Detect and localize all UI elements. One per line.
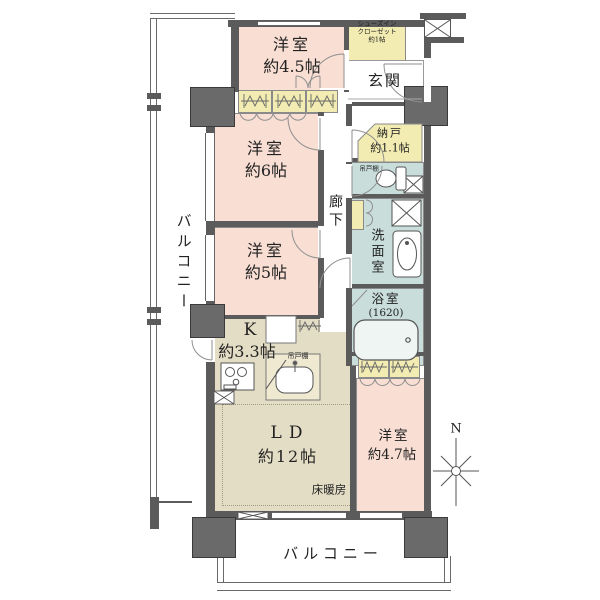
wall-segment (348, 352, 424, 356)
wall-segment (150, 497, 159, 529)
duct-box (424, 19, 451, 38)
sic-line3: 約1帖 (358, 36, 397, 44)
shoes-in-closet-label: シューズイン クローゼット 約1帖 (358, 20, 397, 43)
pillar (404, 517, 448, 558)
door-opening (346, 164, 352, 198)
door-opening (344, 50, 349, 90)
closet-c (306, 90, 338, 113)
kitchen-name: K (244, 321, 257, 341)
wall-segment (348, 284, 424, 288)
window (360, 512, 402, 519)
ld-size: 約12帖 (258, 448, 318, 466)
room-45-name: 洋室 (273, 36, 311, 54)
wall-segment (346, 330, 352, 366)
closet-d (358, 356, 389, 378)
floor-plan: バルコニー 洋室 約4.5帖 シューズイン クローゼット 約1帖 玄関 納戸 約… (0, 0, 600, 600)
wall-segment (350, 366, 356, 516)
door-opening (318, 226, 324, 258)
floor-heating-label: 床暖房 (312, 483, 347, 496)
room-45-size: 約4.5帖 (263, 58, 320, 76)
hanging-cabinet-kitchen-label: 吊戸棚 (288, 352, 309, 360)
window (205, 133, 215, 221)
closet-e (389, 356, 420, 378)
wall-segment (147, 93, 161, 99)
wall-segment (350, 194, 424, 198)
balcony-railing (444, 556, 451, 584)
room-6-name: 洋室 (247, 140, 285, 158)
window (272, 512, 346, 519)
window (258, 21, 320, 26)
nando-name: 納戸 (377, 128, 403, 141)
hanging-cabinet-toilet-label: 吊戸棚 (359, 165, 379, 172)
room-5-name: 洋室 (247, 242, 285, 260)
pillar (192, 517, 236, 558)
bath-name: 浴室 (371, 292, 400, 306)
wall-segment (231, 20, 239, 92)
entrance-label: 玄関 (368, 72, 402, 89)
closet-b (272, 90, 306, 113)
room-5-size: 約5帖 (245, 264, 287, 282)
balcony-railing (150, 13, 157, 505)
balcony-railing (217, 556, 224, 584)
hallway-label: 廊下 (327, 194, 343, 230)
compass-north-label: N (450, 423, 461, 438)
pillar (190, 87, 235, 127)
door-opening (346, 126, 352, 162)
door-opening (206, 338, 215, 362)
ld-name: LD (271, 424, 310, 444)
door-opening (318, 116, 324, 150)
wall-segment (352, 158, 422, 162)
balcony-left-label: バルコニー (174, 213, 191, 313)
compass-icon (433, 438, 479, 506)
room-47-name: 洋室 (379, 429, 410, 445)
pillar (190, 304, 225, 338)
bath-size: (1620) (369, 307, 404, 319)
washroom-cabinet (350, 200, 364, 230)
room-6-size: 約6帖 (245, 162, 287, 180)
wall-segment (212, 221, 319, 227)
window (205, 235, 215, 301)
room-47-size: 約4.7帖 (368, 448, 416, 464)
wall-segment (159, 501, 192, 503)
door-opening (424, 58, 431, 102)
wall-segment (147, 307, 161, 313)
balcony-railing (150, 13, 235, 19)
balcony-railing (217, 582, 451, 591)
wall-segment (147, 319, 161, 325)
washroom-label: 洗面室 (368, 228, 383, 276)
nando-size: 約1.1帖 (370, 143, 410, 156)
closet-a (238, 90, 272, 113)
wall-segment (212, 315, 320, 319)
wall-segment (147, 105, 161, 111)
balcony-bottom-label: バルコニー (283, 545, 383, 562)
kitchen-size: 約3.3帖 (218, 343, 275, 361)
door-opening (346, 254, 352, 288)
